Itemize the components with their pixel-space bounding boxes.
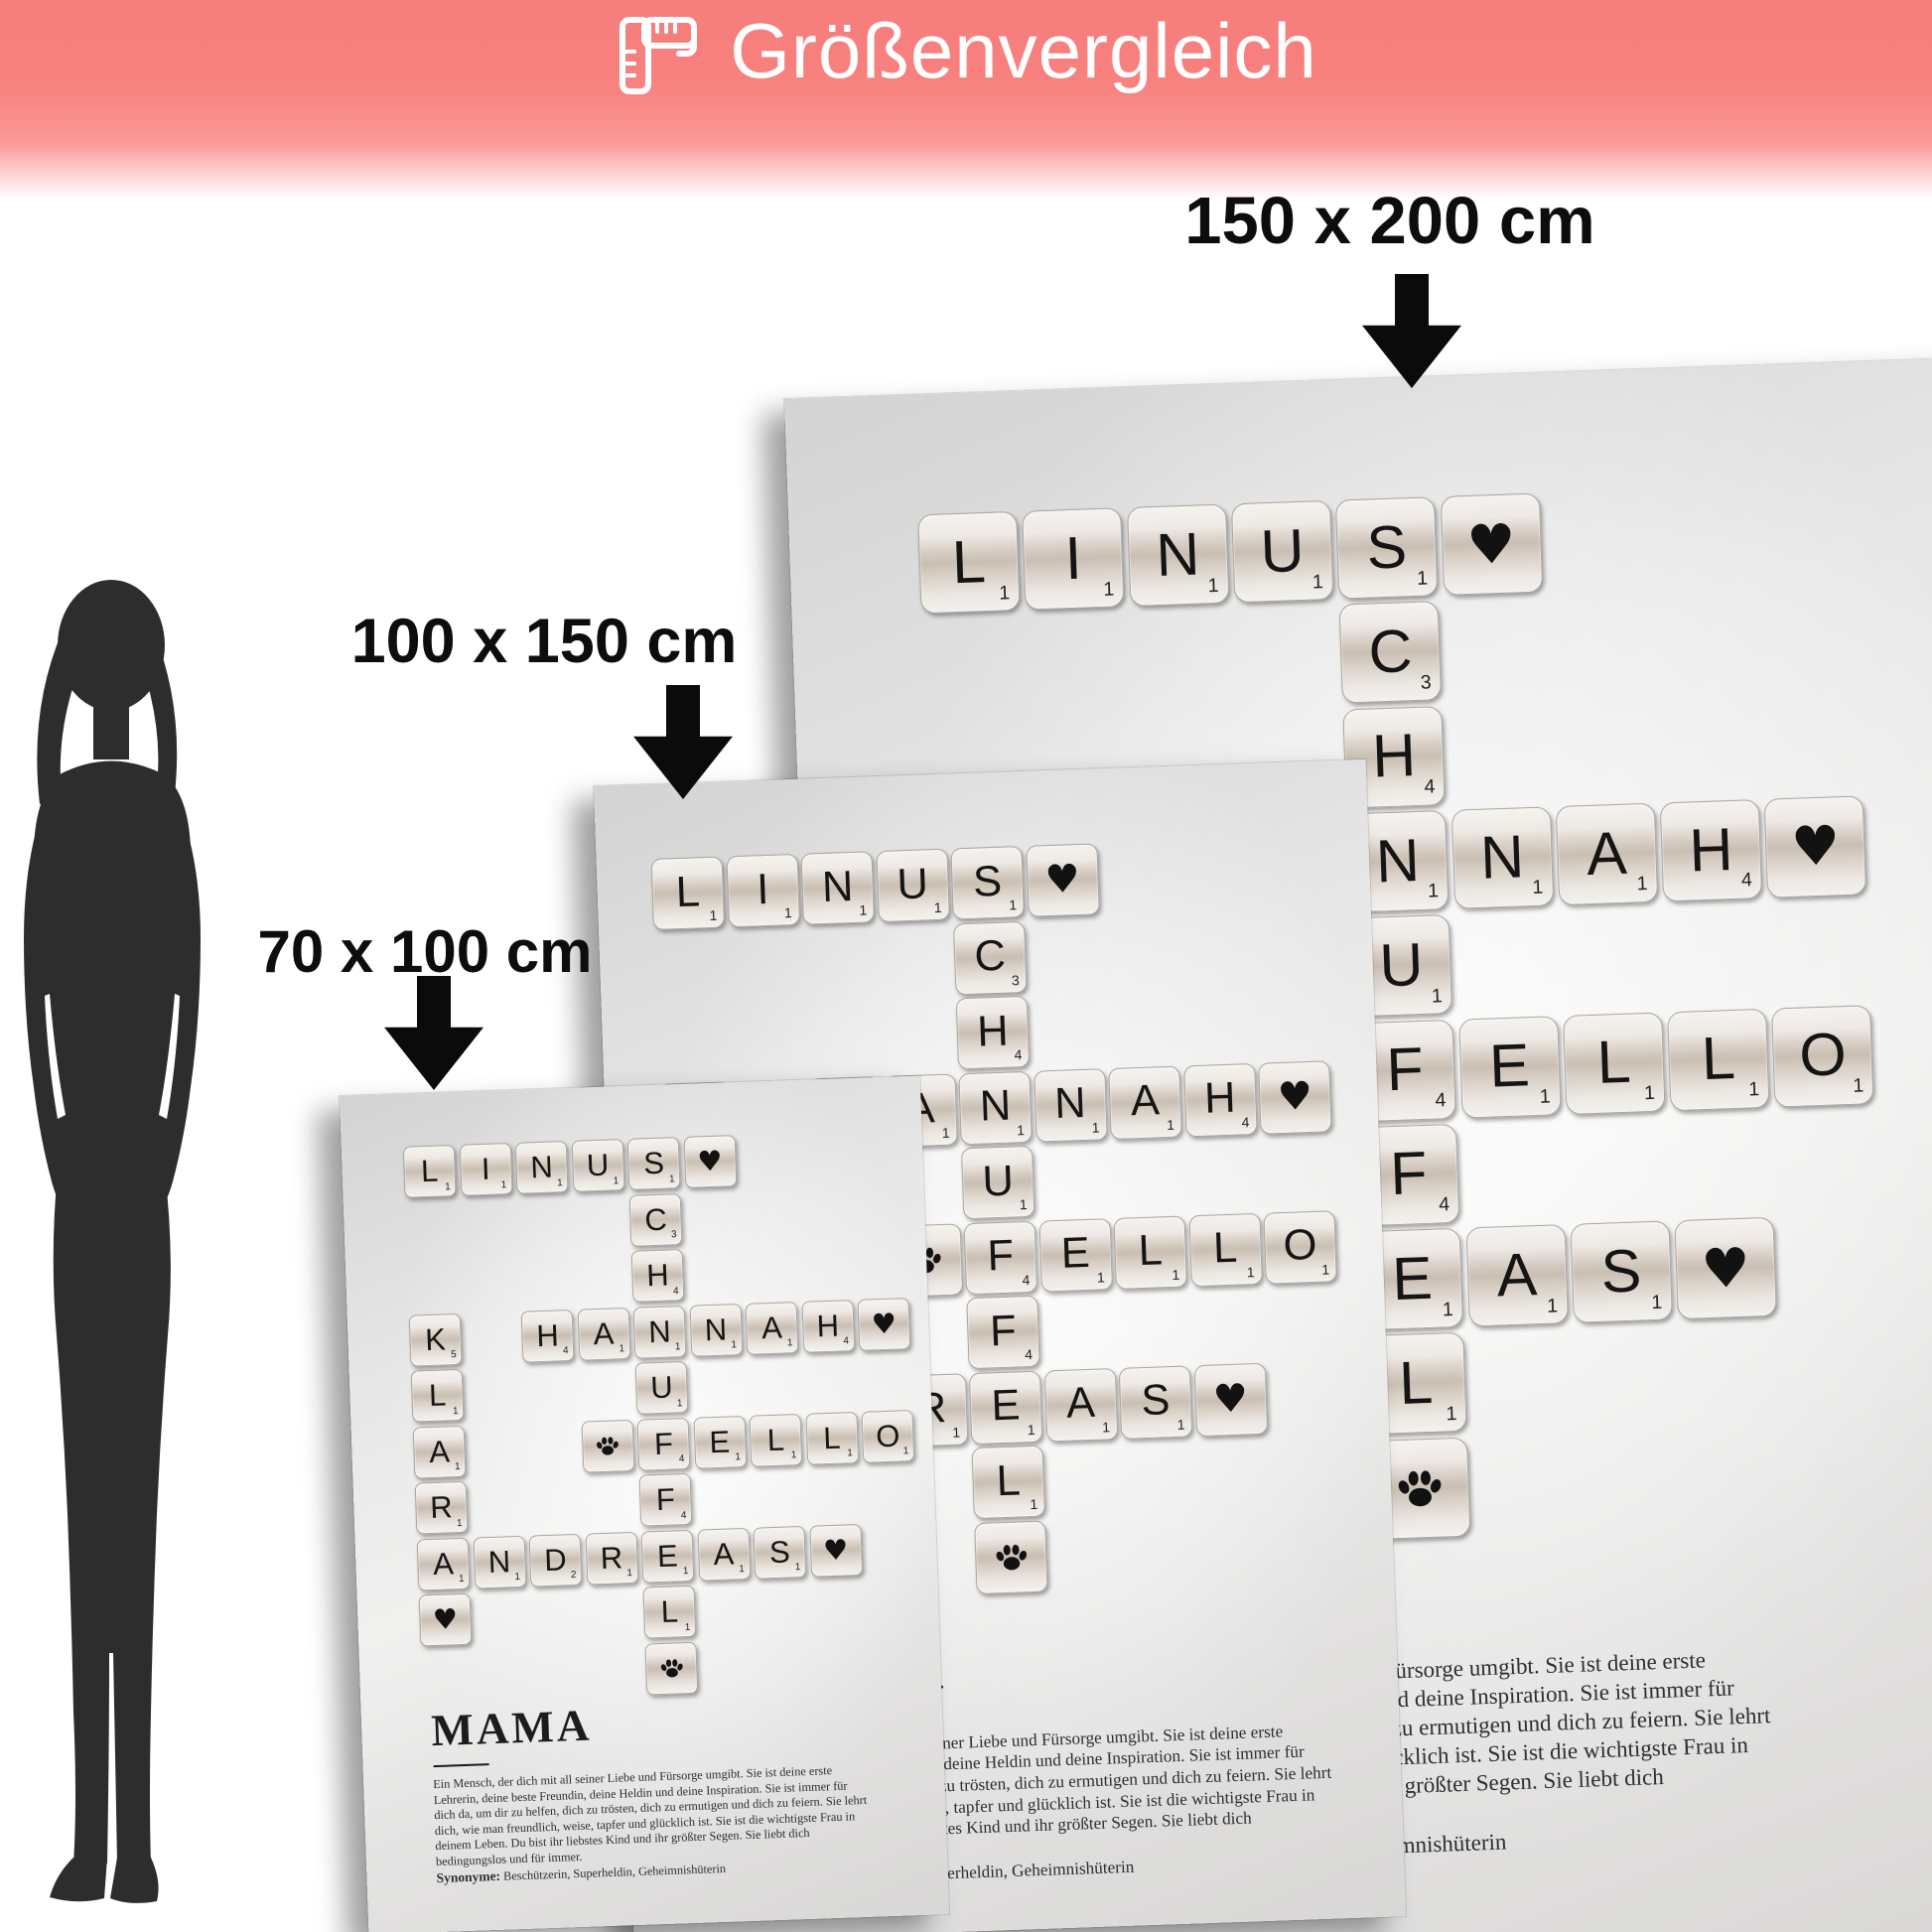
tile-value: 1 xyxy=(739,1565,745,1575)
paw-icon xyxy=(658,1655,684,1681)
tile-value: 4 xyxy=(1439,1195,1450,1215)
tile-value: 1 xyxy=(952,1425,960,1439)
tile-value: 1 xyxy=(675,1342,681,1352)
letter-tile-A: A1 xyxy=(1465,1224,1568,1326)
heart-tile: ♥ xyxy=(1675,1217,1777,1319)
heart-tile: ♥ xyxy=(419,1593,473,1647)
tile-letter: H xyxy=(1371,725,1417,786)
tile-letter: L xyxy=(421,1156,439,1187)
letter-tile-N: N1 xyxy=(1034,1068,1107,1142)
tile-value: 1 xyxy=(459,1575,465,1585)
letter-tile-S: S1 xyxy=(753,1525,806,1579)
letter-tile-A: A1 xyxy=(1556,803,1658,905)
paw-tile xyxy=(644,1641,698,1695)
down-arrow-70x100 xyxy=(384,976,483,1090)
tile-value: 1 xyxy=(613,1176,619,1186)
tile-letter: U xyxy=(586,1150,609,1181)
letter-tile-L: L1 xyxy=(1188,1212,1262,1286)
letter-tile-D: D2 xyxy=(529,1533,583,1587)
size-label-70x100: 70 x 100 cm xyxy=(258,917,593,986)
heart-tile: ♥ xyxy=(857,1298,910,1351)
tile-letter: U xyxy=(1260,519,1306,581)
tile-value: 1 xyxy=(999,584,1011,604)
tile-letter: O xyxy=(1798,1024,1847,1085)
tile-letter: N xyxy=(1155,523,1200,585)
tile-letter: E xyxy=(656,1540,678,1572)
header-banner: Größenvergleich xyxy=(0,0,1932,199)
letter-tile-A: A1 xyxy=(413,1425,467,1478)
letter-tile-U: U1 xyxy=(961,1146,1035,1219)
letter-tile-N: N1 xyxy=(515,1141,569,1194)
tile-value: 1 xyxy=(685,1622,691,1632)
letter-tile-A: A1 xyxy=(417,1537,471,1590)
tile-letter: I xyxy=(481,1154,490,1184)
tile-letter: N xyxy=(821,866,854,909)
tile-letter: N xyxy=(487,1546,510,1578)
poster-70x100: L1I1N1U1S1♥C3H4K5H4A1N1N1A1H4♥L1U1A1F4E1… xyxy=(340,1076,949,1932)
letter-tile-S: S1 xyxy=(1570,1220,1672,1322)
letter-tile-I: I1 xyxy=(726,854,799,927)
tile-letter: A xyxy=(1495,1244,1538,1306)
tile-value: 1 xyxy=(1432,987,1444,1007)
tile-value: 1 xyxy=(1102,1420,1110,1434)
tile-value: 1 xyxy=(1030,1497,1037,1511)
letter-tile-N: N1 xyxy=(689,1304,743,1357)
letter-tile-F: F4 xyxy=(637,1417,691,1470)
letter-tile-N: N1 xyxy=(958,1070,1032,1144)
tile-letter: L xyxy=(1212,1227,1238,1271)
heart-icon: ♥ xyxy=(1044,860,1080,899)
tile-letter: C xyxy=(1367,621,1413,682)
letter-tile-E: E1 xyxy=(1038,1218,1112,1292)
tile-letter: I xyxy=(756,869,769,912)
tile-letter: I xyxy=(1064,527,1083,588)
tile-letter: N xyxy=(704,1313,727,1345)
tile-value: 4 xyxy=(1435,1091,1447,1111)
tile-letter: N xyxy=(1054,1082,1087,1126)
banner-content: Größenvergleich xyxy=(0,6,1932,97)
letter-tile-R: R1 xyxy=(415,1481,469,1535)
tile-value: 1 xyxy=(1547,1297,1559,1316)
heart-tile: ♥ xyxy=(1764,795,1866,897)
heart-tile: ♥ xyxy=(683,1135,737,1188)
tile-letter: F xyxy=(653,1428,673,1459)
letter-tile-U: U1 xyxy=(876,849,949,922)
letter-tile-A: A1 xyxy=(1043,1368,1117,1442)
tile-value: 4 xyxy=(1022,1273,1030,1287)
tile-letter: N xyxy=(1479,826,1525,888)
letter-tile-H: H4 xyxy=(631,1249,685,1303)
poster-title: MAMA xyxy=(431,1704,593,1754)
tile-value: 1 xyxy=(1091,1120,1099,1134)
heart-icon: ♥ xyxy=(1701,1240,1751,1297)
tile-value: 1 xyxy=(1097,1270,1105,1284)
tile-letter: H xyxy=(1689,818,1734,880)
tile-value: 1 xyxy=(1103,580,1115,600)
letter-tile-U: U1 xyxy=(635,1361,689,1415)
letter-tile-A: A1 xyxy=(577,1307,630,1360)
tile-letter: L xyxy=(428,1379,446,1411)
tile-value: 1 xyxy=(731,1340,737,1350)
tile-value: 1 xyxy=(1446,1405,1457,1425)
tile-letter: N xyxy=(530,1152,553,1183)
tile-value: 1 xyxy=(683,1567,689,1577)
size-comparison-graphic: Größenvergleich 150 x 200 cm 100 x 150 c… xyxy=(0,0,1932,1932)
tile-letter: E xyxy=(1488,1035,1531,1096)
letter-tile-F: F4 xyxy=(966,1296,1039,1369)
letter-tile-H: H4 xyxy=(956,996,1030,1069)
tile-value: 4 xyxy=(681,1511,687,1521)
tile-value: 1 xyxy=(1312,573,1324,593)
tile-value: 4 xyxy=(843,1336,849,1346)
tile-letter: U xyxy=(1378,934,1424,996)
tile-letter: U xyxy=(982,1160,1015,1203)
tile-value: 1 xyxy=(1017,1123,1025,1137)
tile-letter: H xyxy=(1203,1077,1236,1121)
heart-tile: ♥ xyxy=(1193,1362,1267,1436)
tile-letter: A xyxy=(1065,1382,1095,1426)
letter-tile-C: C3 xyxy=(953,920,1027,994)
letter-tile-H: H4 xyxy=(801,1300,855,1353)
paw-tile xyxy=(974,1520,1047,1593)
tile-value: 1 xyxy=(453,1407,459,1417)
tile-value: 1 xyxy=(500,1180,506,1190)
tile-value: 1 xyxy=(791,1450,797,1460)
letter-tile-L: L1 xyxy=(411,1369,465,1423)
tile-letter: L xyxy=(675,871,701,914)
letter-tile-S: S1 xyxy=(1119,1365,1192,1439)
letter-tile-S: S1 xyxy=(1335,496,1438,599)
tile-value: 4 xyxy=(673,1287,679,1297)
tile-value: 1 xyxy=(795,1563,801,1573)
letter-tile-F: F4 xyxy=(964,1220,1037,1294)
tile-letter: S xyxy=(1365,516,1408,578)
letter-tile-L: L1 xyxy=(805,1412,859,1465)
tile-value: 4 xyxy=(1014,1047,1022,1061)
tile-letter: F xyxy=(989,1310,1017,1353)
banner-title: Größenvergleich xyxy=(730,9,1317,94)
heart-tile: ♥ xyxy=(1440,493,1542,596)
tile-letter: S xyxy=(643,1148,665,1179)
tile-value: 2 xyxy=(571,1571,577,1581)
tile-letter: A xyxy=(593,1317,615,1349)
tile-letter: H xyxy=(976,1010,1009,1053)
tile-value: 1 xyxy=(1028,1422,1035,1436)
tile-letter: S xyxy=(972,860,1002,903)
tile-letter: O xyxy=(876,1420,900,1451)
tile-letter: E xyxy=(991,1384,1021,1428)
letter-tile-E: E1 xyxy=(640,1529,694,1583)
tile-value: 1 xyxy=(557,1178,563,1188)
tile-value: 1 xyxy=(1532,879,1544,898)
tile-value: 4 xyxy=(1241,1115,1249,1129)
tile-value: 1 xyxy=(1417,569,1429,589)
tile-letter: L xyxy=(660,1595,678,1627)
tile-value: 5 xyxy=(451,1350,457,1360)
tile-value: 1 xyxy=(455,1462,461,1472)
tile-letter: S xyxy=(1141,1379,1171,1423)
letter-tile-N: N1 xyxy=(1127,504,1229,607)
heart-tile: ♥ xyxy=(1258,1060,1331,1134)
tile-value: 1 xyxy=(1636,875,1648,895)
tile-letter: L xyxy=(996,1459,1022,1503)
tile-letter: H xyxy=(536,1319,559,1351)
tile-value: 1 xyxy=(1009,897,1017,911)
letter-tile-H: H4 xyxy=(521,1309,575,1362)
heart-tile: ♥ xyxy=(809,1523,863,1577)
tile-letter: A xyxy=(1586,822,1628,884)
tile-letter: N xyxy=(979,1085,1012,1129)
tile-value: 3 xyxy=(1012,973,1020,987)
tile-value: 1 xyxy=(1172,1267,1179,1281)
tile-value: 1 xyxy=(1207,576,1219,596)
letter-tile-N: N1 xyxy=(473,1535,526,1588)
letter-tile-N: N1 xyxy=(633,1305,687,1358)
tile-value: 3 xyxy=(1421,673,1433,693)
tile-letter: A xyxy=(713,1538,735,1570)
letter-tile-E: E1 xyxy=(693,1415,747,1468)
tile-letter: H xyxy=(816,1310,839,1341)
letter-tile-S: S1 xyxy=(950,846,1024,919)
tile-value: 1 xyxy=(787,1338,793,1348)
tile-letter: F xyxy=(1389,1143,1428,1204)
letter-tile-F: F4 xyxy=(639,1473,693,1527)
letter-tile-O: O1 xyxy=(861,1410,914,1463)
tile-value: 1 xyxy=(457,1518,463,1528)
size-label-100x150: 100 x 150 cm xyxy=(351,606,738,677)
letter-tile-E: E1 xyxy=(969,1370,1042,1444)
letter-tile-C: C3 xyxy=(1339,601,1442,703)
woman-silhouette xyxy=(0,561,278,1932)
letter-tile-O: O1 xyxy=(1771,1005,1873,1107)
paw-icon xyxy=(1395,1463,1446,1514)
tile-letter: N xyxy=(1375,830,1421,892)
tile-value: 1 xyxy=(1651,1293,1663,1312)
letter-tile-L: L1 xyxy=(917,511,1020,614)
tile-value: 1 xyxy=(1644,1084,1656,1104)
heart-icon: ♥ xyxy=(432,1605,458,1634)
letter-tile-U: U1 xyxy=(571,1139,624,1192)
poster-definition: Ein Mensch, der dich mit all seiner Lieb… xyxy=(433,1760,912,1869)
tile-letter: A xyxy=(1130,1079,1160,1123)
letter-tile-I: I1 xyxy=(459,1143,512,1196)
tile-value: 3 xyxy=(671,1230,677,1240)
heart-icon: ♥ xyxy=(823,1536,849,1565)
tile-value: 1 xyxy=(619,1344,624,1354)
tile-value: 4 xyxy=(563,1346,569,1356)
letter-tile-E: E1 xyxy=(1458,1016,1561,1118)
ruler-icon xyxy=(615,6,702,97)
tile-letter: E xyxy=(1060,1232,1090,1276)
tile-value: 1 xyxy=(1167,1117,1174,1131)
letter-tile-A: A1 xyxy=(746,1302,799,1355)
tile-letter: L xyxy=(823,1422,841,1453)
tile-value: 1 xyxy=(1539,1088,1551,1108)
letter-tile-L: L1 xyxy=(1563,1012,1665,1114)
down-arrow-150x200 xyxy=(1362,274,1461,388)
size-label-150x200: 150 x 200 cm xyxy=(1184,183,1595,259)
tile-letter: R xyxy=(600,1542,622,1574)
tile-letter: S xyxy=(1600,1240,1643,1302)
tile-letter: L xyxy=(766,1424,784,1455)
title-underline xyxy=(434,1763,489,1767)
heart-tile: ♥ xyxy=(1026,843,1099,916)
letter-tile-C: C3 xyxy=(629,1193,683,1247)
tile-letter: A xyxy=(761,1311,783,1343)
tile-letter: S xyxy=(768,1536,790,1568)
heart-icon: ♥ xyxy=(697,1148,723,1176)
tile-letter: A xyxy=(433,1548,455,1580)
tile-letter: N xyxy=(648,1315,671,1347)
tile-value: 1 xyxy=(626,1569,632,1579)
letter-tile-S: S1 xyxy=(627,1137,681,1190)
paw-icon xyxy=(595,1433,621,1458)
tile-value: 1 xyxy=(1247,1265,1255,1279)
tile-value: 1 xyxy=(669,1174,675,1184)
letter-tile-N: N1 xyxy=(800,851,874,924)
tile-value: 1 xyxy=(1020,1197,1028,1211)
tile-value: 1 xyxy=(445,1182,451,1192)
tile-letter: U xyxy=(897,863,929,906)
tile-value: 1 xyxy=(1176,1417,1184,1431)
letter-tile-L: L1 xyxy=(651,857,725,930)
tile-letter: C xyxy=(974,935,1007,979)
tile-value: 1 xyxy=(934,900,942,914)
tile-letter: L xyxy=(1138,1229,1164,1273)
letter-tile-L: L1 xyxy=(403,1145,457,1198)
letter-tile-L: L1 xyxy=(642,1586,696,1639)
tile-value: 1 xyxy=(1443,1301,1454,1320)
tile-value: 1 xyxy=(735,1452,741,1462)
tile-value: 1 xyxy=(942,1125,950,1139)
heart-icon: ♥ xyxy=(1465,516,1516,573)
tile-value: 1 xyxy=(1748,1080,1760,1100)
tile-value: 4 xyxy=(1741,872,1753,892)
tile-value: 1 xyxy=(1853,1077,1864,1097)
letter-tile-L: L1 xyxy=(749,1413,802,1466)
tile-letter: L xyxy=(1398,1352,1434,1414)
heart-icon: ♥ xyxy=(1790,819,1841,876)
tile-letter: F xyxy=(987,1235,1015,1279)
tile-value: 1 xyxy=(677,1399,683,1409)
tile-value: 1 xyxy=(784,905,792,919)
tile-letter: H xyxy=(646,1260,669,1292)
heart-icon: ♥ xyxy=(1212,1379,1248,1419)
tile-value: 1 xyxy=(514,1573,520,1583)
tile-value: 1 xyxy=(1428,883,1440,902)
tile-letter: U xyxy=(650,1371,673,1403)
letter-tile-K: K5 xyxy=(409,1312,463,1366)
tile-letter: L xyxy=(951,531,987,593)
tile-letter: E xyxy=(1391,1248,1434,1310)
tile-value: 1 xyxy=(859,903,867,917)
tile-value: 1 xyxy=(903,1447,909,1456)
tile-letter: O xyxy=(1283,1224,1317,1269)
tile-value: 4 xyxy=(679,1454,685,1464)
tile-letter: L xyxy=(1596,1032,1632,1093)
paw-icon xyxy=(993,1539,1029,1575)
letter-tile-L: L1 xyxy=(1667,1008,1769,1110)
letter-tile-H: H4 xyxy=(1183,1062,1257,1136)
letter-tile-U: U1 xyxy=(1231,500,1333,603)
letter-tile-A: A1 xyxy=(1108,1065,1181,1139)
tile-letter: E xyxy=(709,1426,731,1457)
tile-letter: L xyxy=(1701,1028,1736,1089)
letter-tile-H: H4 xyxy=(1660,799,1762,901)
tile-value: 1 xyxy=(709,908,717,922)
tile-value: 4 xyxy=(1424,778,1436,798)
tile-value: 4 xyxy=(1025,1347,1033,1361)
synonyms-label: Synonyme: xyxy=(436,1868,500,1885)
letter-tile-L: L1 xyxy=(971,1446,1044,1519)
letter-tile-N: N1 xyxy=(1450,806,1553,908)
tile-value: 1 xyxy=(847,1449,853,1458)
letter-tile-R: R1 xyxy=(585,1531,638,1585)
tile-letter: C xyxy=(644,1203,667,1235)
tile-letter: F xyxy=(655,1483,675,1515)
tile-letter: K xyxy=(425,1323,447,1355)
letter-tile-L: L1 xyxy=(1113,1215,1186,1289)
tile-letter: D xyxy=(544,1544,567,1576)
letter-tile-A: A1 xyxy=(697,1527,751,1581)
letter-tile-I: I1 xyxy=(1022,507,1124,610)
paw-tile xyxy=(581,1419,634,1472)
tile-letter: F xyxy=(1386,1038,1425,1100)
tile-letter: R xyxy=(430,1491,453,1523)
heart-icon: ♥ xyxy=(1277,1077,1312,1117)
heart-icon: ♥ xyxy=(871,1310,897,1338)
tile-value: 1 xyxy=(1321,1262,1329,1276)
letter-tile-O: O1 xyxy=(1263,1210,1336,1284)
tile-letter: A xyxy=(429,1436,451,1467)
